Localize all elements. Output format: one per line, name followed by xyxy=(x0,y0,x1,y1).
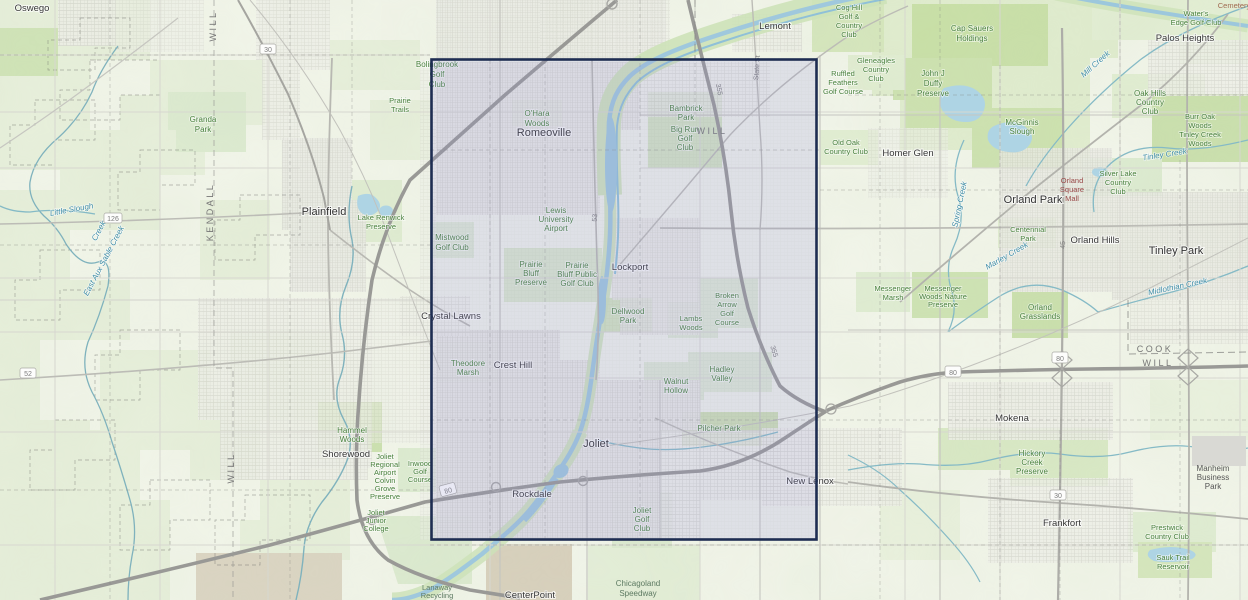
svg-text:30: 30 xyxy=(1054,493,1062,500)
svg-text:45: 45 xyxy=(1060,241,1067,249)
svg-text:ChicagolandSpeedway: ChicagolandSpeedway xyxy=(616,579,660,598)
svg-text:JolietRegionalAirportColvinGro: JolietRegionalAirportColvinGrovePreserve xyxy=(370,452,400,501)
svg-text:Cemetery: Cemetery xyxy=(1218,1,1248,10)
svg-text:Homer Glen: Homer Glen xyxy=(882,148,933,159)
svg-text:Oswego: Oswego xyxy=(15,3,50,14)
svg-text:PrestwickCountry Club: PrestwickCountry Club xyxy=(1145,523,1189,541)
svg-text:Mokena: Mokena xyxy=(995,413,1030,424)
svg-text:80: 80 xyxy=(1056,356,1064,363)
svg-text:Plainfield: Plainfield xyxy=(302,206,347,218)
svg-text:LanawayRecycling: LanawayRecycling xyxy=(421,583,454,600)
svg-text:80: 80 xyxy=(949,370,957,377)
svg-text:CenterPoint: CenterPoint xyxy=(505,590,556,600)
svg-text:WILL: WILL xyxy=(208,10,218,41)
svg-text:Frankfort: Frankfort xyxy=(1043,518,1081,529)
svg-text:52: 52 xyxy=(24,371,32,378)
svg-text:126: 126 xyxy=(107,216,119,223)
svg-text:McGinnisSlough: McGinnisSlough xyxy=(1005,118,1038,136)
svg-text:Sauk TrailReservoir: Sauk TrailReservoir xyxy=(1156,553,1190,571)
svg-text:Tinley Park: Tinley Park xyxy=(1149,245,1204,257)
svg-text:KENDALL: KENDALL xyxy=(205,183,215,242)
svg-text:Cap SauersHoldings: Cap SauersHoldings xyxy=(951,24,993,43)
svg-text:COOK: COOK xyxy=(1137,344,1174,354)
svg-text:HammelWoods: HammelWoods xyxy=(337,426,367,444)
svg-text:PrairieTrails: PrairieTrails xyxy=(389,96,411,114)
svg-text:Orland Park: Orland Park xyxy=(1004,194,1063,206)
svg-text:Orland Hills: Orland Hills xyxy=(1070,235,1119,246)
svg-text:Lemont: Lemont xyxy=(759,21,791,32)
svg-text:Shorewood: Shorewood xyxy=(322,449,370,460)
svg-text:30: 30 xyxy=(264,47,272,54)
svg-text:WILL: WILL xyxy=(1142,358,1173,368)
svg-text:WILL: WILL xyxy=(226,452,236,483)
svg-text:Palos Heights: Palos Heights xyxy=(1156,33,1215,44)
